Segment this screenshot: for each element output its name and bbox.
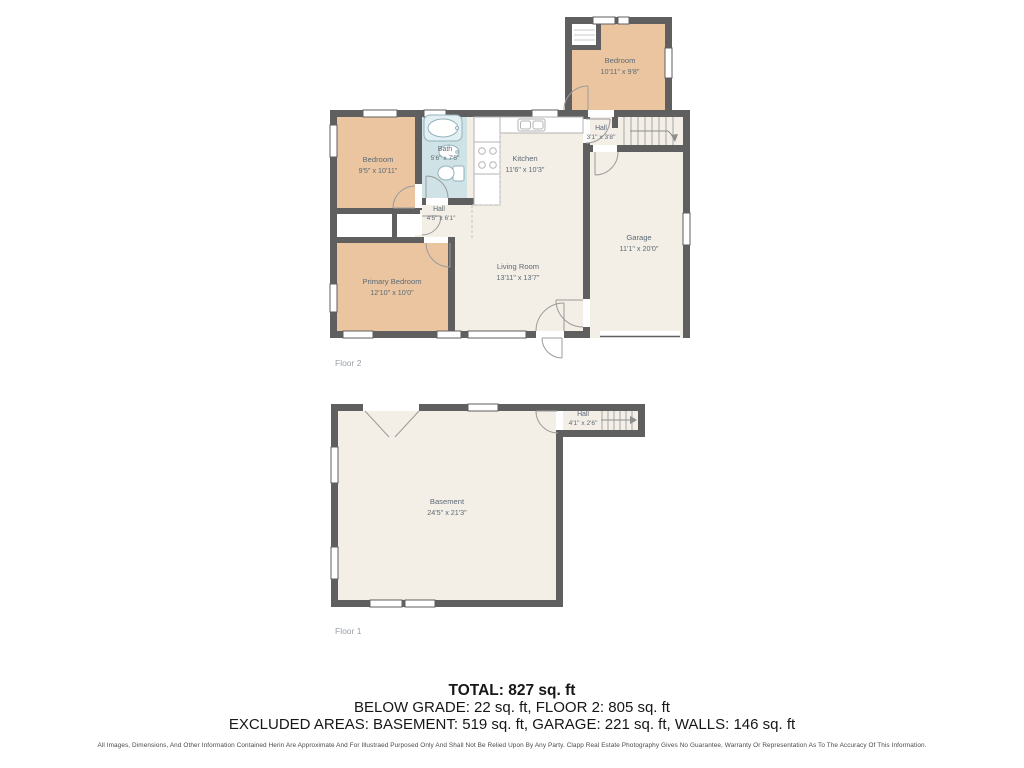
room-dims-basement: 24'5" x 21'3" (427, 508, 467, 517)
room-dims-primary-bedroom: 12'10" x 10'0" (370, 288, 414, 297)
walls-floor2-part (565, 17, 572, 117)
floorplan-floor1: Basement 24'5" x 21'3" Hall 4'1" x 2'6" … (331, 404, 645, 636)
door-gap (583, 299, 590, 327)
kitchen-sink-basin (521, 121, 531, 129)
door-gap (593, 145, 617, 152)
room-label-living-room: Living Room (497, 262, 539, 271)
window (437, 331, 461, 338)
bathtub-basin (428, 119, 458, 137)
walls-floor1-part (556, 430, 645, 437)
room-dims-bath: 5'6" x 7'5" (431, 155, 460, 162)
walls-floor1-part (638, 404, 645, 437)
door-gap (426, 198, 448, 205)
room-label-bath: Bath (438, 146, 452, 153)
door-gap (556, 411, 563, 430)
window (405, 600, 435, 607)
room-label-kitchen: Kitchen (512, 154, 537, 163)
room-label-bedroom-top: Bedroom (605, 56, 636, 65)
window (331, 547, 338, 579)
double-door-gap (363, 404, 419, 411)
room-label-hall: Hall (433, 206, 445, 213)
stove (474, 142, 500, 174)
room-garage (583, 110, 690, 338)
walls-floor2-part (392, 214, 397, 237)
window (683, 213, 690, 245)
door-gap (536, 331, 564, 338)
excluded-areas-line: EXCLUDED AREAS: BASEMENT: 519 sq. ft, GA… (0, 716, 1024, 733)
room-dims-kitchen: 11'6" x 10'3" (506, 165, 545, 174)
sink-faucet (456, 151, 459, 154)
room-primary-bedroom (337, 243, 448, 331)
floorplan-canvas: Bedroom 10'11" x 9'8" Hall 3'1" x 3'8" B… (0, 0, 1024, 768)
room-label-bedroom: Bedroom (363, 155, 394, 164)
floor1-label: Floor 1 (335, 626, 362, 636)
room-dims-hall-floor1: 4'1" x 2'6" (569, 420, 598, 427)
window (593, 17, 615, 24)
room-dims-garage: 11'1" x 20'0" (620, 244, 659, 253)
disclaimer-text: All Images, Dimensions, And Other Inform… (0, 742, 1024, 749)
room-dims-bedroom-top: 10'11" x 9'8" (601, 67, 640, 76)
window (363, 110, 397, 117)
floorplan-page: Bedroom 10'11" x 9'8" Hall 3'1" x 3'8" B… (0, 0, 1024, 768)
window (532, 110, 558, 117)
door-gap (415, 214, 422, 235)
walls-floor2-part (672, 110, 690, 117)
closet-strip (337, 214, 415, 237)
area-summary: TOTAL: 827 sq. ft BELOW GRADE: 22 sq. ft… (0, 682, 1024, 733)
room-dims-hall: 4'5" x 6'1" (427, 215, 456, 222)
room-label-garage: Garage (626, 233, 651, 242)
room-dims-bedroom: 9'5" x 10'11" (359, 166, 398, 175)
floorplan-floor2: Bedroom 10'11" x 9'8" Hall 3'1" x 3'8" B… (330, 17, 690, 368)
floor2-label: Floor 2 (335, 358, 362, 368)
kitchen-sink-basin (533, 121, 543, 129)
total-area: TOTAL: 827 sq. ft (0, 682, 1024, 699)
toilet-tank (453, 166, 464, 181)
door-gap (415, 184, 422, 208)
below-grade-line: BELOW GRADE: 22 sq. ft, FLOOR 2: 805 sq.… (0, 699, 1024, 716)
room-label-basement: Basement (430, 497, 465, 506)
walls-floor2-part (612, 117, 618, 128)
room-dims-hall-upper: 3'1" x 3'8" (587, 134, 616, 141)
walls-floor1-part (331, 600, 563, 607)
window (331, 447, 338, 483)
walls-floor2-part (572, 45, 601, 50)
walls-floor2-part (337, 208, 420, 214)
bathtub-faucet (456, 127, 459, 130)
room-fills-floor1 (338, 411, 638, 600)
window (330, 125, 337, 157)
room-label-primary-bedroom: Primary Bedroom (362, 277, 421, 286)
room-dims-living-room: 13'11" x 13'7" (497, 273, 540, 282)
window (468, 404, 498, 411)
room-label-hall-floor1: Hall (577, 411, 589, 418)
window (665, 48, 672, 78)
walls-floor2-part (448, 243, 455, 338)
window (343, 331, 373, 338)
walls-floor1-part (556, 437, 563, 607)
toilet-bowl (438, 166, 454, 180)
window (330, 284, 337, 312)
door-gap (588, 110, 614, 117)
window (468, 331, 526, 338)
window (618, 17, 629, 24)
entry-step-arc (542, 338, 562, 358)
room-label-hall-upper: Hall (595, 125, 607, 132)
door-gap (424, 237, 448, 243)
window (370, 600, 402, 607)
